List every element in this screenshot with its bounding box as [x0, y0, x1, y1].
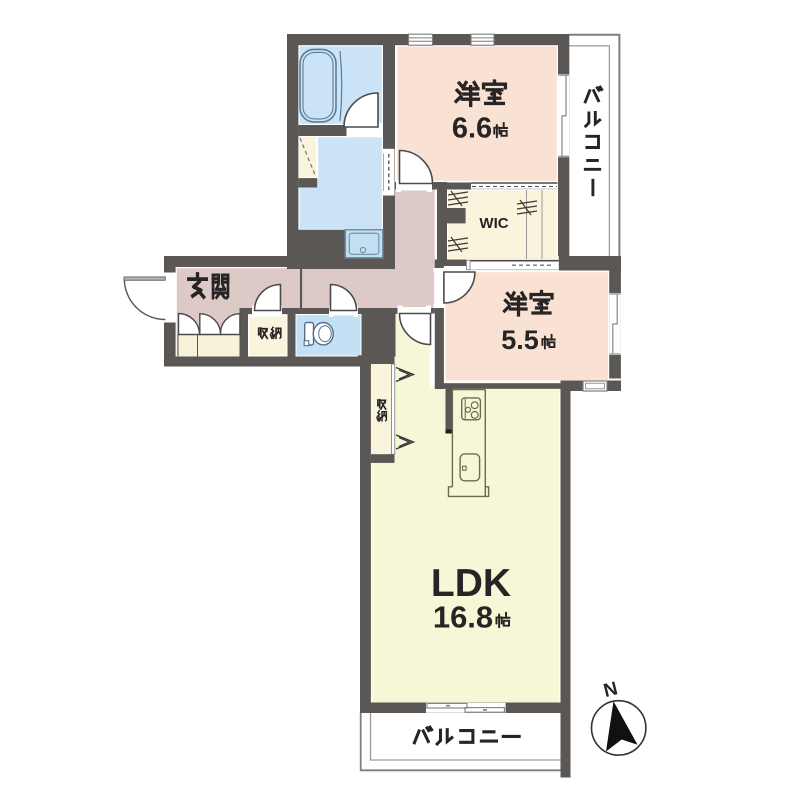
svg-text:5.5: 5.5 [501, 325, 539, 355]
svg-text:WIC: WIC [479, 215, 508, 232]
svg-text:6.6: 6.6 [452, 112, 492, 144]
svg-text:16.8: 16.8 [433, 599, 493, 634]
